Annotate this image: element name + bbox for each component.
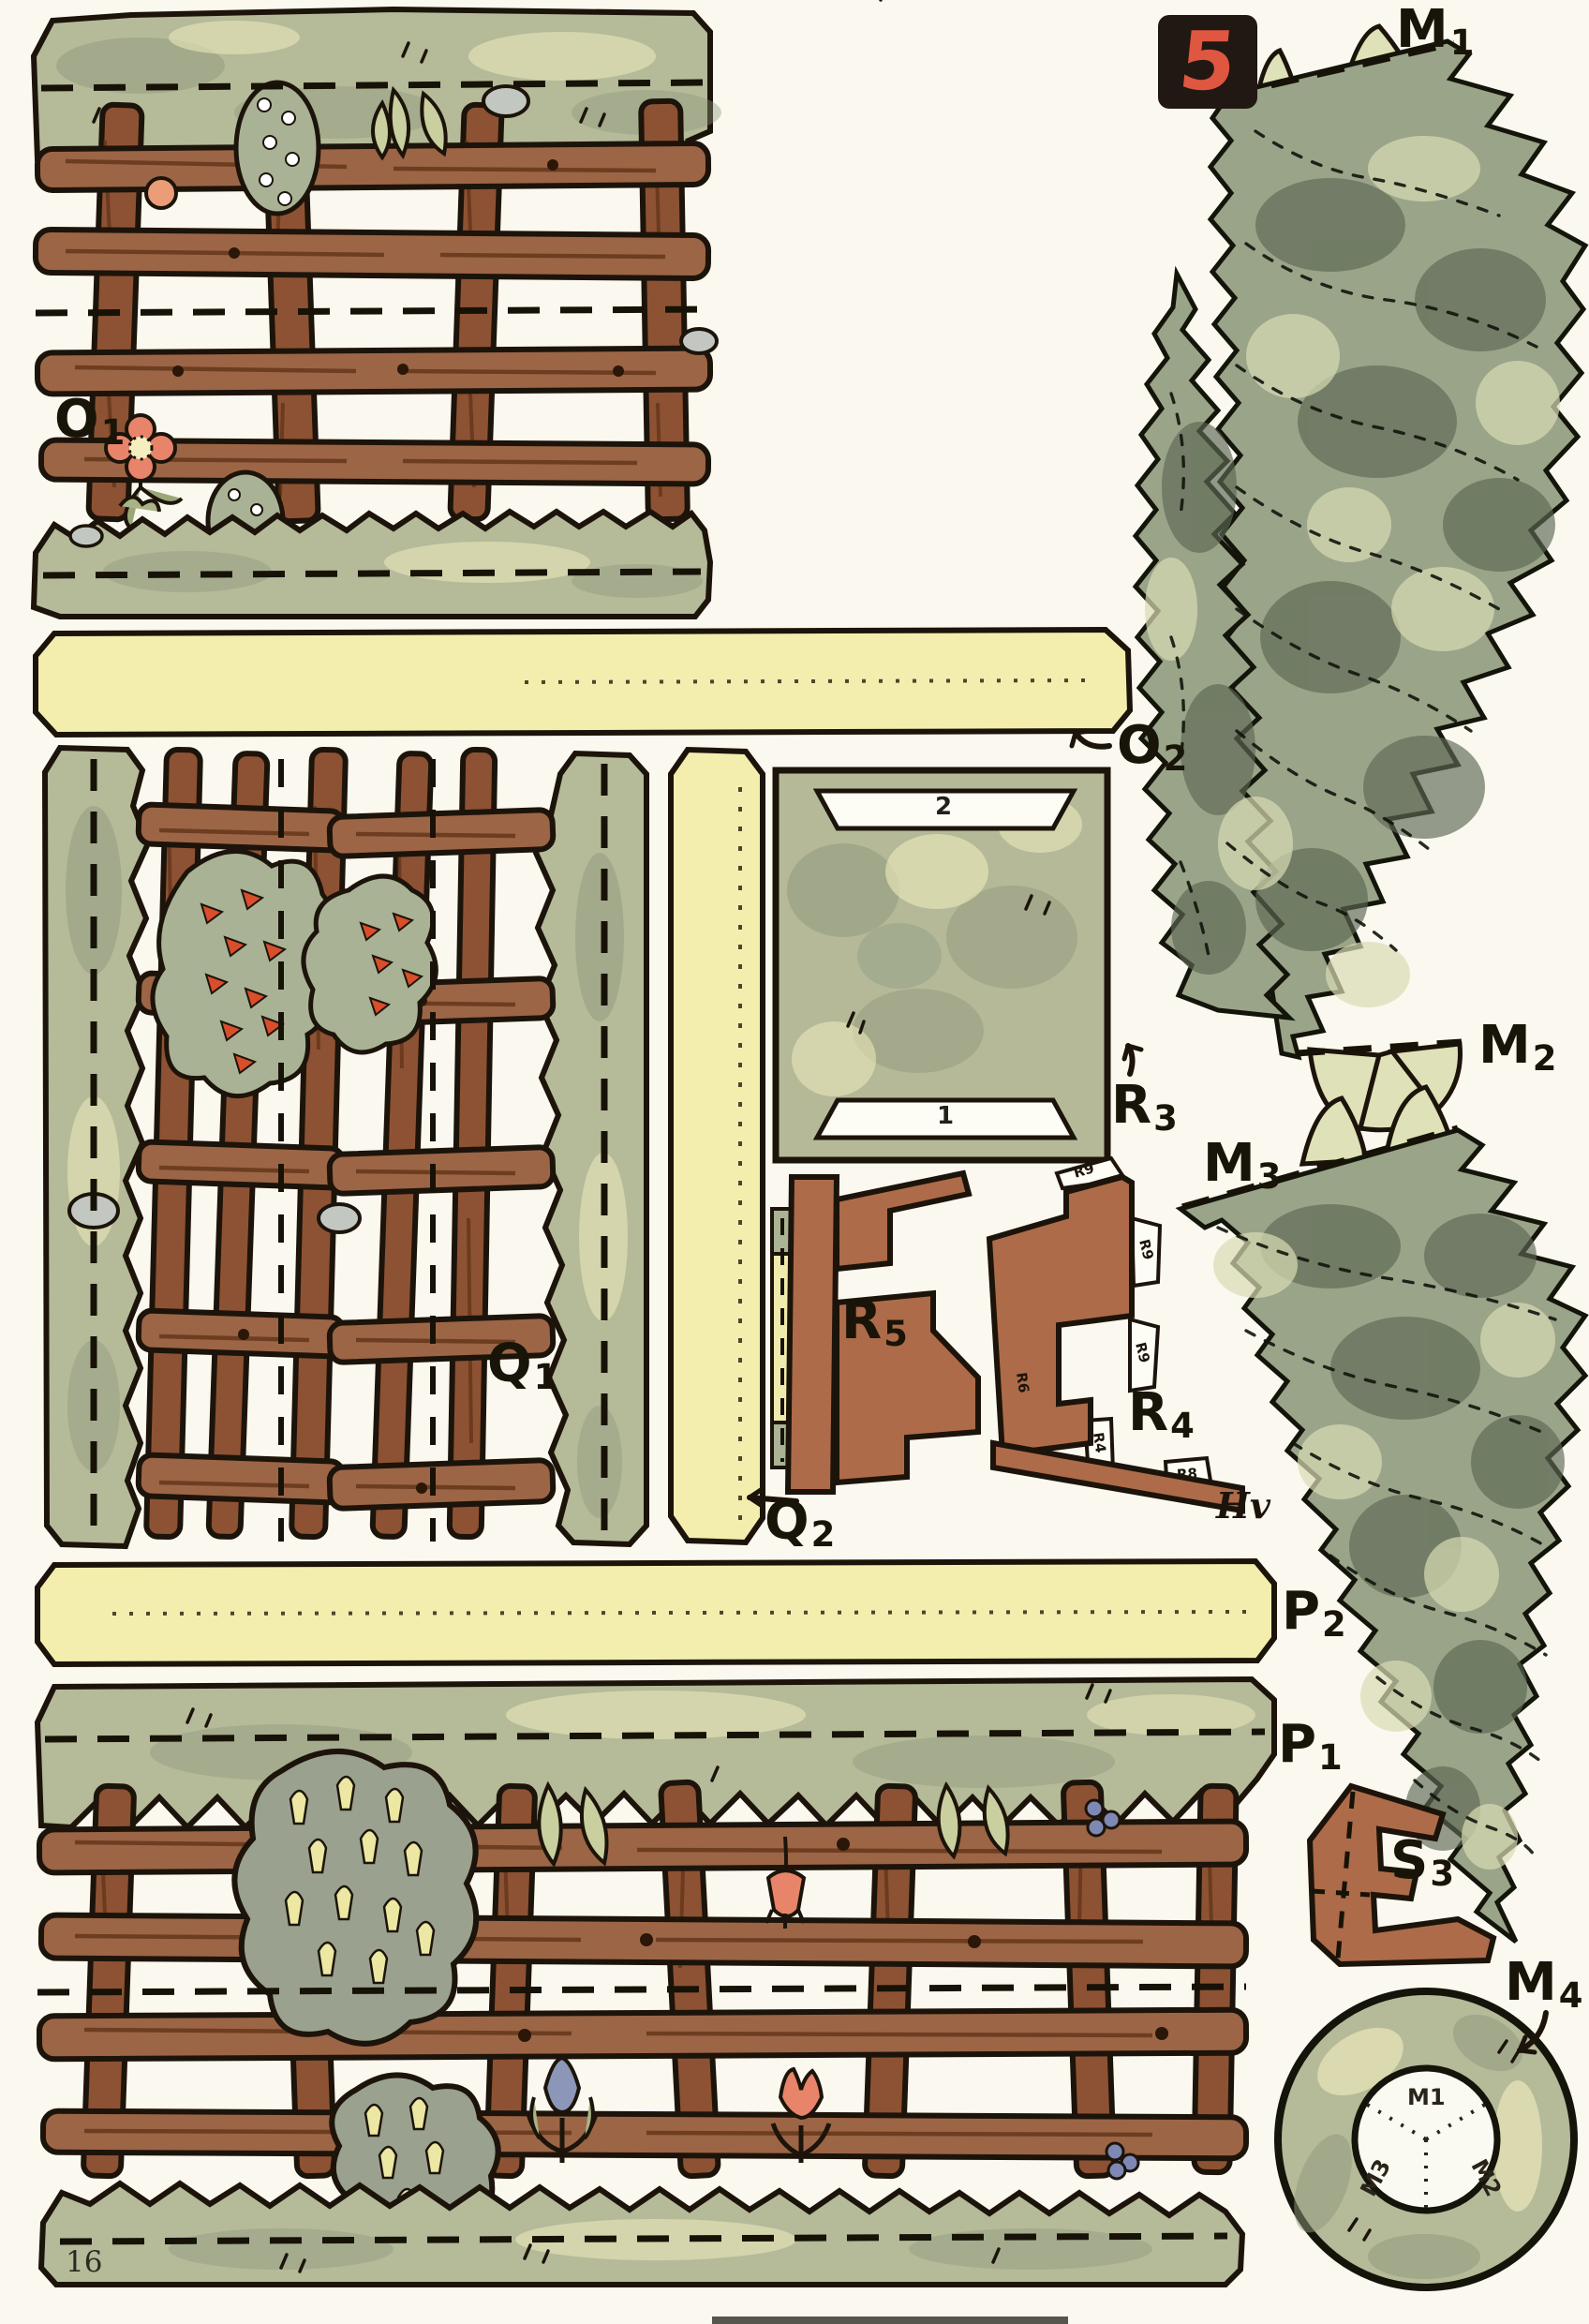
- print-edge-mark: [712, 2317, 1068, 2324]
- label-q1: Q1: [487, 1338, 559, 1395]
- glue-tab-label: R8: [1177, 1467, 1198, 1482]
- part-p2-strip: [37, 1561, 1274, 1664]
- label-m4: M4: [1505, 1957, 1584, 2014]
- page-number: 16: [66, 2245, 102, 2279]
- label-r5: R5: [841, 1295, 910, 1352]
- label-s3: S3: [1390, 1835, 1456, 1892]
- label-q2: Q2: [765, 1496, 837, 1553]
- flower-bush-white: [236, 82, 319, 214]
- glue-tab-label: R6: [1014, 1372, 1031, 1394]
- sheet-illustration: [0, 0, 1589, 2324]
- slot-number-bottom: 1: [937, 1104, 954, 1128]
- sheet-number: 5: [1175, 15, 1240, 109]
- slot-number-top: 2: [935, 795, 952, 819]
- flower-bud: [146, 178, 176, 208]
- part-o2-strip: [36, 630, 1130, 735]
- rock: [319, 1204, 360, 1232]
- label-p1: P1: [1278, 1719, 1344, 1776]
- cutout-sheet-page: 5 O1 O2 Q1 Q2 R3 R4 R5 P2 P1 S3 M1 M2 M3…: [0, 0, 1589, 2324]
- rock: [483, 86, 528, 116]
- part-p1-fence: [37, 1679, 1274, 2285]
- flower-bush-yellow-bells: [234, 1751, 476, 2044]
- part-q2-strip: [671, 750, 763, 1542]
- label-o1: O1: [54, 394, 126, 451]
- label-r3: R3: [1111, 1080, 1180, 1137]
- part-m4-ring: [1278, 1991, 1574, 2287]
- label-o2: O2: [1117, 720, 1189, 777]
- ring-sector-top: M1: [1407, 2086, 1446, 2108]
- part-q1-fence: [45, 748, 646, 1546]
- label-m2: M2: [1478, 1020, 1558, 1077]
- part-o1-fence: [34, 0, 881, 617]
- flower-bush-red-small: [304, 876, 436, 1052]
- glue-tab-label: R9: [1133, 1341, 1151, 1364]
- label-r4: R4: [1128, 1387, 1196, 1444]
- label-p2: P2: [1282, 1586, 1348, 1643]
- glue-tab-label: R9: [1136, 1238, 1155, 1261]
- sheet-number-badge: 5: [1158, 15, 1257, 109]
- glue-tab-label: R4: [1091, 1432, 1107, 1454]
- artist-monogram: Hv: [1216, 1484, 1270, 1527]
- rock: [681, 329, 717, 353]
- label-m3: M3: [1203, 1138, 1283, 1195]
- label-m1: M1: [1396, 4, 1476, 61]
- part-m1-m2-trees: [1136, 26, 1585, 1130]
